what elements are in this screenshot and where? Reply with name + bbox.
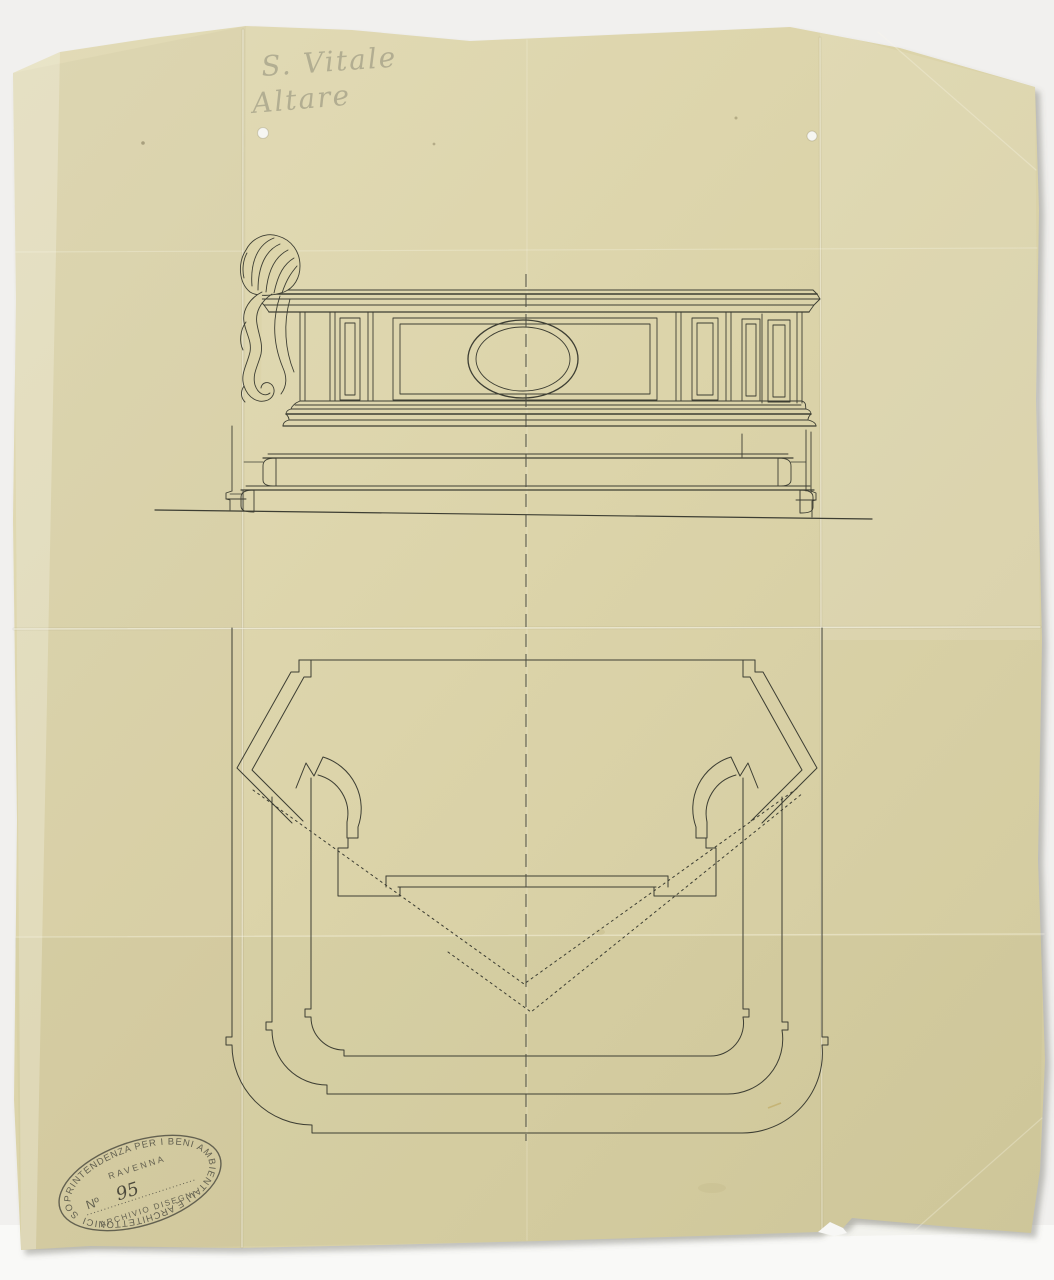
document-scan: S. Vitale Altare SOPRINTENDENZA PER I BE… [0,0,1054,1280]
paper-stain [698,1183,726,1193]
paper-hole-right [807,131,817,141]
paper-speck [735,117,738,120]
paper-speck [433,143,436,146]
paper-hole-left [258,128,269,139]
paper-stain [595,929,605,935]
archival-drawing-scan: S. Vitale Altare SOPRINTENDENZA PER I BE… [0,0,1054,1280]
paper-speck [141,141,145,145]
